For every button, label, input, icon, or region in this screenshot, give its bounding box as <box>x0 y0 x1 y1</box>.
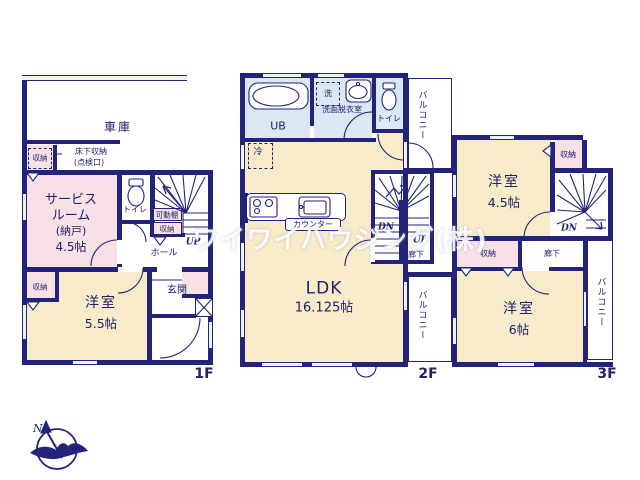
label-3f-hallway: 廊下 <box>544 250 560 258</box>
label-garage: 車庫 <box>104 121 132 133</box>
kitchen-counter <box>246 193 346 221</box>
label-2f-balcony-top: バルコニー <box>417 90 426 140</box>
label-stair-storage: 収納 <box>160 225 175 233</box>
compass-north-label: N <box>32 422 43 435</box>
label-3f-storage-top: 収納 <box>560 151 576 159</box>
label-service-room-4: 4.5帖 <box>55 241 86 253</box>
label-2f-toilet: トイレ <box>377 115 401 123</box>
wall-1f-bottom <box>22 360 213 365</box>
label-ldk-size: 16.125帖 <box>295 302 354 315</box>
label-2f-balcony-bottom: バルコニー <box>417 290 426 340</box>
label-1f-storage-upper: 収納 <box>33 154 48 162</box>
floor-label-1f: 1F <box>194 367 213 381</box>
label-3f-dn: DN <box>561 225 577 234</box>
label-underfloor-2: (点検口) <box>74 159 104 167</box>
label-hall: ホール <box>150 250 177 259</box>
label-3f-balcony: バルコニー <box>596 277 605 327</box>
label-1f-bedroom: 洋室 <box>85 296 117 310</box>
compass-bird <box>30 443 88 459</box>
label-washroom: 洗面脱衣室 <box>322 106 362 114</box>
floor-label-2f: 2F <box>418 367 437 381</box>
label-washer: 洗 <box>324 90 332 98</box>
floor-label-3f: 3F <box>597 367 616 381</box>
label-movable-shelf: 可動棚 <box>156 211 179 219</box>
watermark: ワイワイハウジング(株) <box>192 220 487 257</box>
room-2f-toilet <box>376 78 403 132</box>
label-3f-bedroom2-size: 6帖 <box>509 324 529 337</box>
label-ub: UB <box>270 121 286 132</box>
label-3f-bedroom2: 洋室 <box>503 302 535 316</box>
label-fridge: 冷 <box>253 149 262 158</box>
room-2f-balcony-bottom <box>408 272 452 362</box>
label-service-room-1: サービス <box>45 194 97 207</box>
room-2f-balcony-top <box>408 78 452 173</box>
label-underfloor-1: 床下収納 <box>75 148 107 156</box>
garage-door-bar <box>22 75 187 81</box>
compass-icon <box>30 421 88 469</box>
label-service-room-3: (納戸) <box>56 226 87 237</box>
label-3f-bedroom1: 洋室 <box>488 175 520 189</box>
label-1f-toilet: トイレ <box>123 206 147 214</box>
label-service-room-2: ルーム <box>52 210 91 223</box>
label-ldk: LDK <box>306 281 343 298</box>
wall-3f-top <box>452 135 583 140</box>
label-1f-storage-lower: 収納 <box>33 283 48 291</box>
label-3f-bedroom1-size: 4.5帖 <box>488 197 520 210</box>
x-box-1f <box>195 298 213 317</box>
label-1f-bedroom-size: 5.5帖 <box>85 318 117 331</box>
floor-plan-canvas: N 車庫 収納 床下収納 (点検口) サービス ルーム (納戸) 4.5帖 トイ… <box>0 0 640 480</box>
label-entrance: 玄関 <box>167 286 187 296</box>
